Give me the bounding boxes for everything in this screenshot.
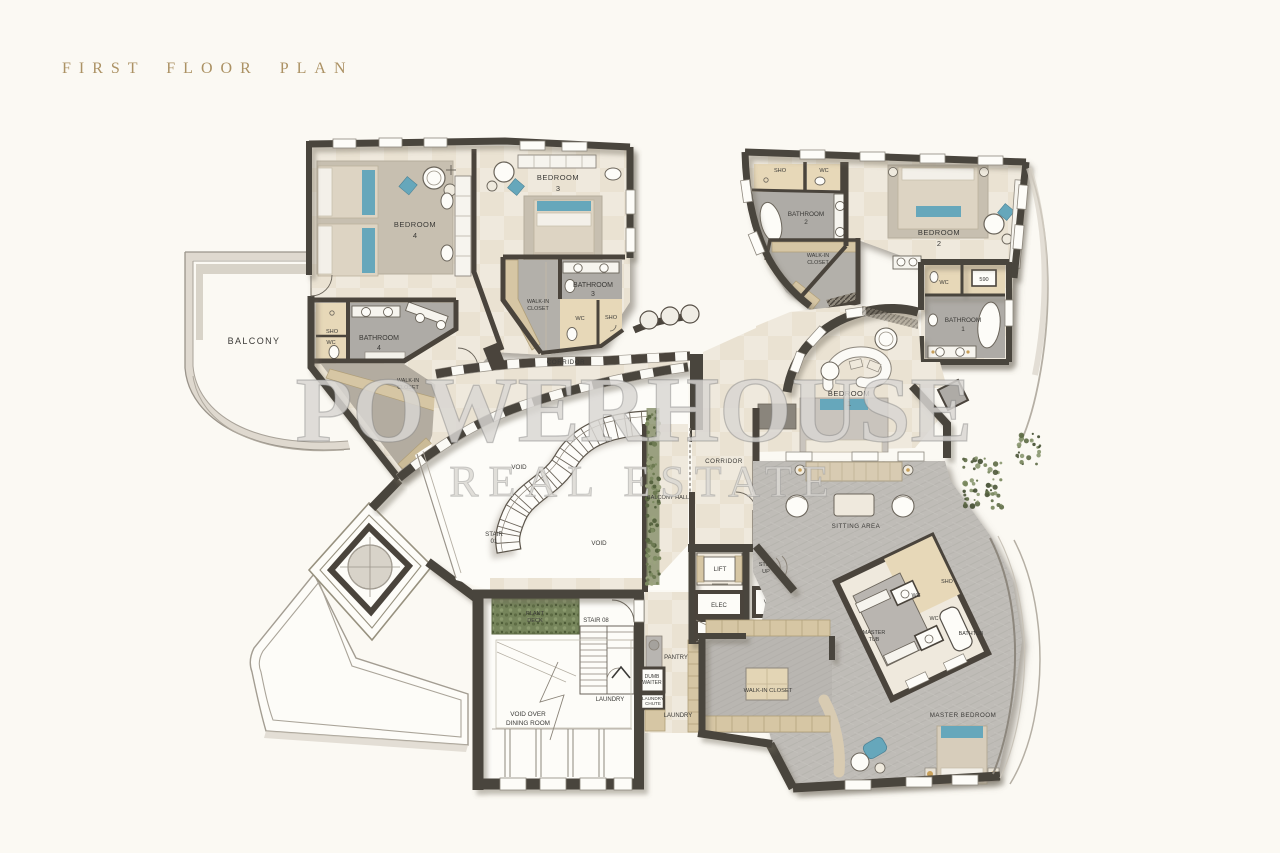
- svg-text:BEDROOM: BEDROOM: [537, 173, 579, 182]
- svg-text:BATHTUB: BATHTUB: [959, 631, 984, 637]
- svg-text:WC: WC: [930, 616, 939, 622]
- svg-text:3: 3: [556, 184, 560, 193]
- svg-text:FIRST FLOOR PLAN: FIRST FLOOR PLAN: [62, 60, 354, 77]
- svg-text:WC: WC: [939, 280, 948, 286]
- svg-text:590: 590: [979, 277, 988, 283]
- svg-text:LAUNDRY: LAUNDRY: [664, 713, 693, 719]
- svg-text:MASTER: MASTER: [863, 630, 886, 636]
- svg-text:BEDROOM: BEDROOM: [394, 220, 436, 229]
- svg-text:WALK-IN CLOSET: WALK-IN CLOSET: [744, 688, 793, 694]
- svg-text:POWERHOUSE: POWERHOUSE: [296, 359, 973, 462]
- svg-text:CLOSET: CLOSET: [807, 260, 829, 266]
- svg-text:BEDROOM: BEDROOM: [918, 228, 960, 237]
- svg-text:01: 01: [491, 538, 498, 545]
- svg-text:DINING ROOM: DINING ROOM: [506, 720, 550, 727]
- svg-text:4: 4: [413, 231, 417, 240]
- svg-text:WAITER: WAITER: [642, 680, 662, 686]
- svg-text:DECK: DECK: [527, 618, 543, 624]
- svg-text:TUB: TUB: [869, 637, 880, 643]
- svg-text:REAL ESTATE: REAL ESTATE: [449, 457, 839, 506]
- svg-text:PANTRY: PANTRY: [664, 655, 688, 661]
- svg-text:STAIR: STAIR: [485, 531, 503, 538]
- svg-text:SHO: SHO: [605, 315, 618, 321]
- svg-text:VOID OVER: VOID OVER: [510, 711, 546, 718]
- svg-text:ELEC: ELEC: [711, 603, 727, 609]
- svg-text:3: 3: [591, 291, 595, 298]
- svg-text:BATHROOM: BATHROOM: [788, 211, 824, 218]
- svg-text:SHO: SHO: [326, 329, 339, 335]
- svg-text:MASTER BEDROOM: MASTER BEDROOM: [930, 712, 996, 719]
- svg-text:WC: WC: [912, 593, 921, 599]
- svg-text:SITTING AREA: SITTING AREA: [832, 523, 881, 530]
- svg-text:BATHROOM: BATHROOM: [359, 335, 399, 342]
- svg-text:CLOSET: CLOSET: [527, 306, 549, 312]
- svg-text:SHO: SHO: [941, 579, 953, 585]
- svg-text:STAIR 08: STAIR 08: [583, 618, 609, 624]
- svg-text:VOID: VOID: [591, 540, 607, 547]
- svg-text:BALCONY: BALCONY: [228, 336, 281, 346]
- svg-text:4: 4: [377, 345, 381, 352]
- svg-text:WALK-IN: WALK-IN: [807, 253, 829, 259]
- svg-text:SHO: SHO: [774, 168, 787, 174]
- svg-text:WALK-IN: WALK-IN: [527, 299, 549, 305]
- svg-text:WC: WC: [575, 316, 584, 322]
- svg-text:LIFT: LIFT: [714, 566, 727, 573]
- svg-text:WC: WC: [819, 168, 828, 174]
- svg-text:UP: UP: [762, 569, 770, 575]
- svg-text:2: 2: [937, 239, 941, 248]
- svg-text:1: 1: [961, 326, 965, 333]
- svg-text:PLANT: PLANT: [526, 611, 545, 617]
- svg-text:CHUTE: CHUTE: [645, 701, 661, 706]
- svg-text:LAUNDRY: LAUNDRY: [596, 697, 625, 703]
- svg-text:BATHROOM: BATHROOM: [945, 317, 981, 324]
- svg-text:BATHROOM: BATHROOM: [573, 282, 613, 289]
- svg-text:2: 2: [804, 219, 808, 226]
